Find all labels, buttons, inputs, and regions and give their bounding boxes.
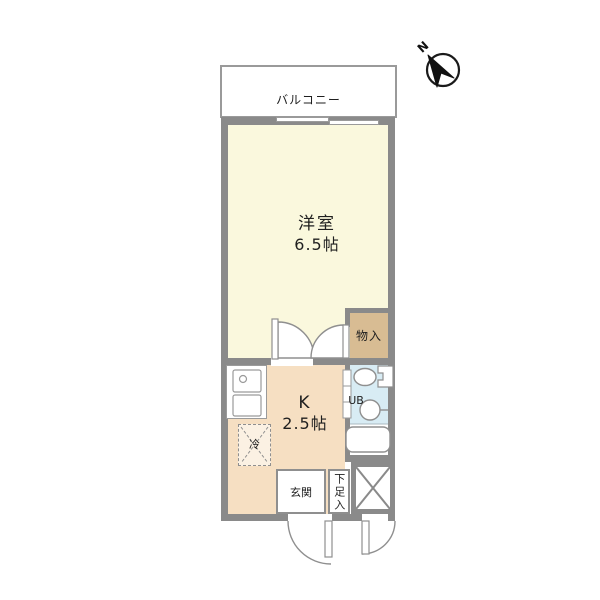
kitchen-size: 2.5帖 (265, 414, 345, 434)
compass-circle (427, 54, 459, 86)
wall (221, 117, 228, 521)
wall (345, 313, 350, 327)
door-opening (288, 514, 332, 522)
door-opening (362, 514, 388, 522)
western-room-size: 6.5帖 (237, 235, 397, 255)
north-arrow-icon (428, 55, 454, 87)
refrigerator-label-text: 冷 (249, 438, 260, 451)
wall (388, 117, 395, 521)
western-room-name: 洋室 (237, 214, 397, 235)
shoe-cabinet-label-text: 下足入 (333, 473, 346, 512)
floor-plan: バルコニー 洋室 6.5帖 K 2.5帖 物入 UB 玄関 下足入 冷 N (0, 0, 600, 600)
kitchen-counter (226, 365, 267, 419)
refrigerator-label: 冷 (238, 438, 271, 452)
entrance-label: 玄関 (276, 486, 326, 500)
shoe-cabinet-label: 下足入 (332, 471, 346, 513)
western-room-label: 洋室 6.5帖 (237, 214, 397, 255)
service-door-swing (362, 521, 395, 554)
entrance-door-swing (288, 521, 331, 564)
sliding-window (329, 120, 379, 125)
kitchen-label: K 2.5帖 (265, 393, 345, 434)
wall (345, 365, 350, 455)
kitchen-name: K (265, 393, 345, 414)
wall (221, 514, 288, 521)
balcony-label-text: バルコニー (276, 93, 341, 107)
balcony-label: バルコニー (220, 89, 397, 109)
service-door-leaf (362, 521, 369, 554)
unit-bath-tub-area (350, 424, 388, 455)
wall (228, 358, 272, 365)
wall (332, 514, 362, 521)
compass-north-label: N (415, 38, 432, 55)
unit-bath-label-text: UB (348, 394, 364, 407)
closet-label-text: 物入 (356, 329, 382, 343)
wall (345, 455, 388, 462)
closet-label: 物入 (350, 329, 388, 344)
sliding-window (276, 117, 329, 122)
unit-bath-label: UB (344, 394, 368, 408)
entrance-label-text: 玄関 (290, 486, 312, 499)
wall (345, 308, 388, 313)
wall (312, 358, 388, 365)
entrance-door-leaf (325, 521, 332, 557)
shaft-box (351, 462, 395, 514)
